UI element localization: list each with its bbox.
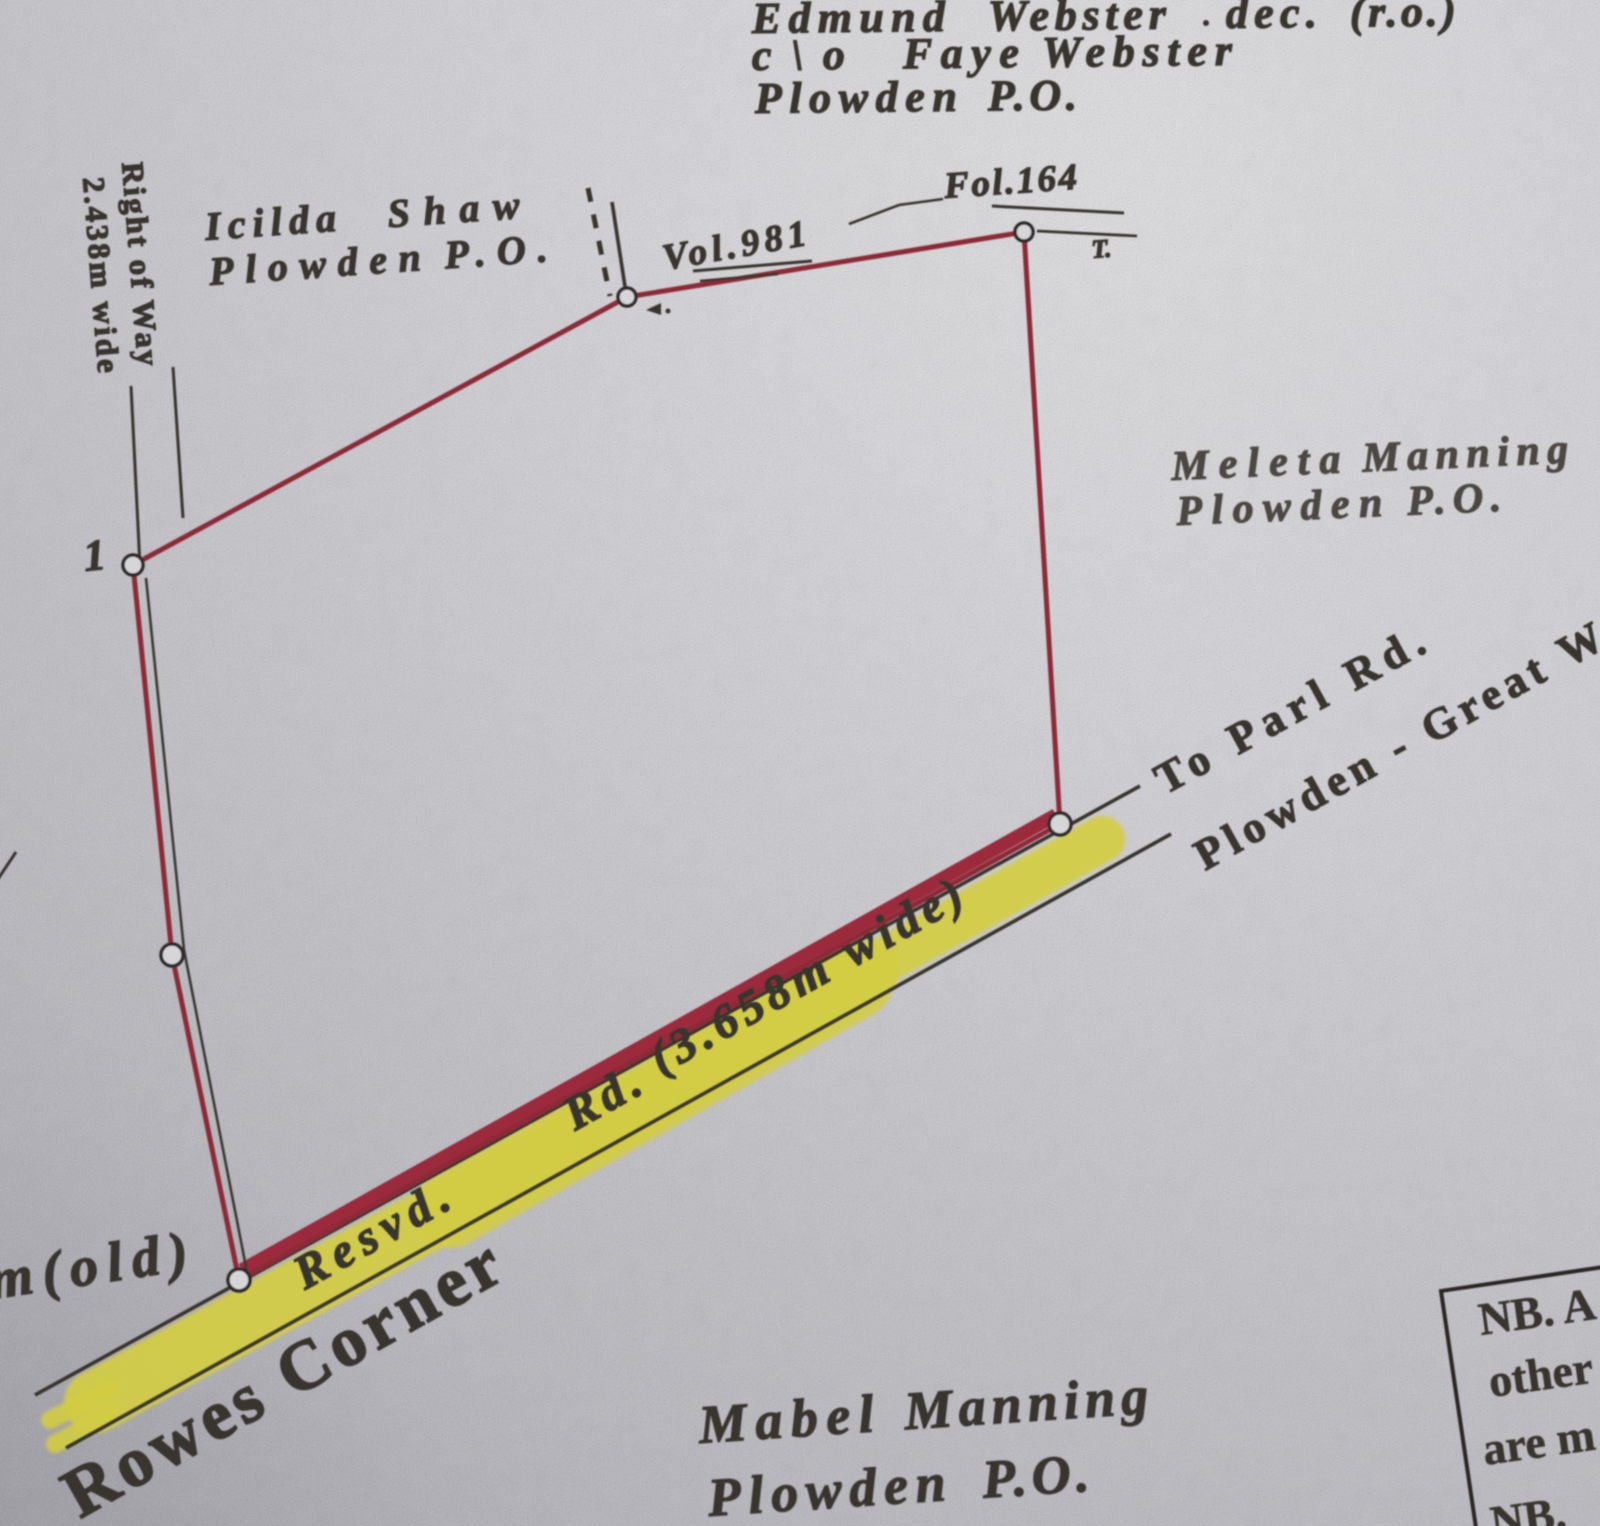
svg-text:T.: T.	[1090, 234, 1112, 264]
